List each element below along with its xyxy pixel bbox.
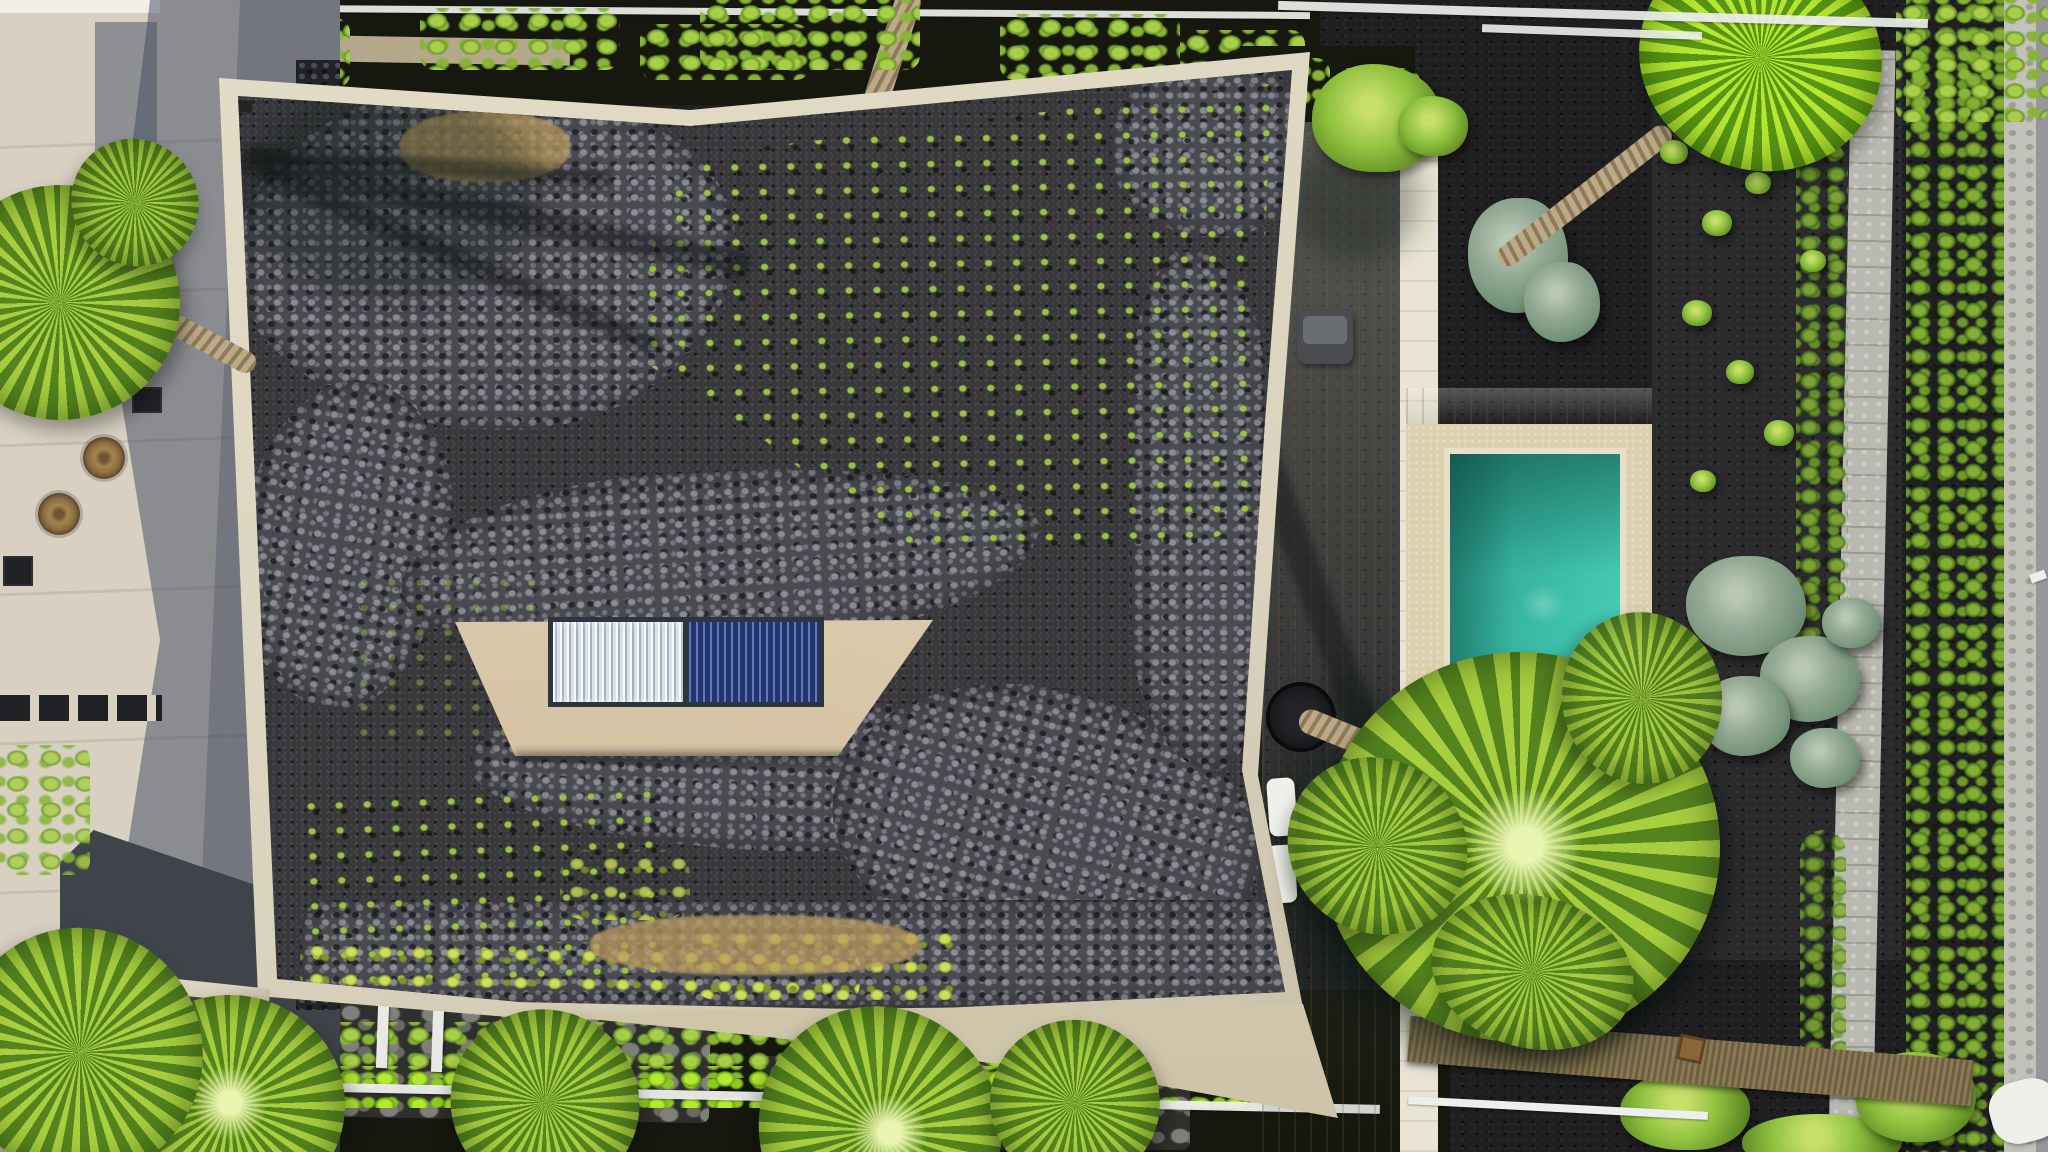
palm-shadow-roof-soft <box>240 90 540 300</box>
kerb-band <box>0 0 160 13</box>
aerial-photo-villa <box>0 0 2048 1152</box>
garden-tuft <box>1682 300 1712 326</box>
platform-shadow <box>515 752 845 762</box>
palm-crown-top <box>700 0 920 70</box>
solar-panel-blue <box>689 622 819 702</box>
garden-tuft <box>1660 140 1688 164</box>
garden-bush-sage <box>1822 598 1880 648</box>
manhole-cover <box>83 437 125 479</box>
garden-tuft <box>1690 470 1716 492</box>
garden-bush-sage <box>1524 262 1600 342</box>
manhole-cover <box>38 493 80 535</box>
chair-cushion <box>1303 316 1347 344</box>
garden-bush-bright <box>1398 96 1468 156</box>
yellow-bush-patch <box>560 850 690 920</box>
solar-panel-silver <box>553 622 683 702</box>
pool-ripple-highlight <box>1520 584 1566 624</box>
vine-hedge-right <box>1906 0 2006 1152</box>
pool-head-deck <box>1406 388 1652 426</box>
garden-tuft <box>1800 250 1826 272</box>
drain-grate-row <box>0 695 162 721</box>
white-post <box>431 1010 444 1072</box>
palm-crown-core <box>1455 780 1595 910</box>
planter-box <box>1676 1034 1707 1065</box>
garden-tuft <box>1726 360 1754 384</box>
dry-grass <box>590 915 920 975</box>
white-post <box>376 1004 389 1068</box>
garden-tuft <box>1702 210 1732 236</box>
vine-clump <box>420 8 620 70</box>
border-vegetation <box>0 745 90 875</box>
garden-tuft <box>1745 172 1771 194</box>
garden-tuft <box>1764 420 1794 446</box>
garden-bush-sage <box>1790 728 1860 788</box>
drain-grate <box>3 556 33 586</box>
deck-lounge-chair <box>1297 310 1353 364</box>
